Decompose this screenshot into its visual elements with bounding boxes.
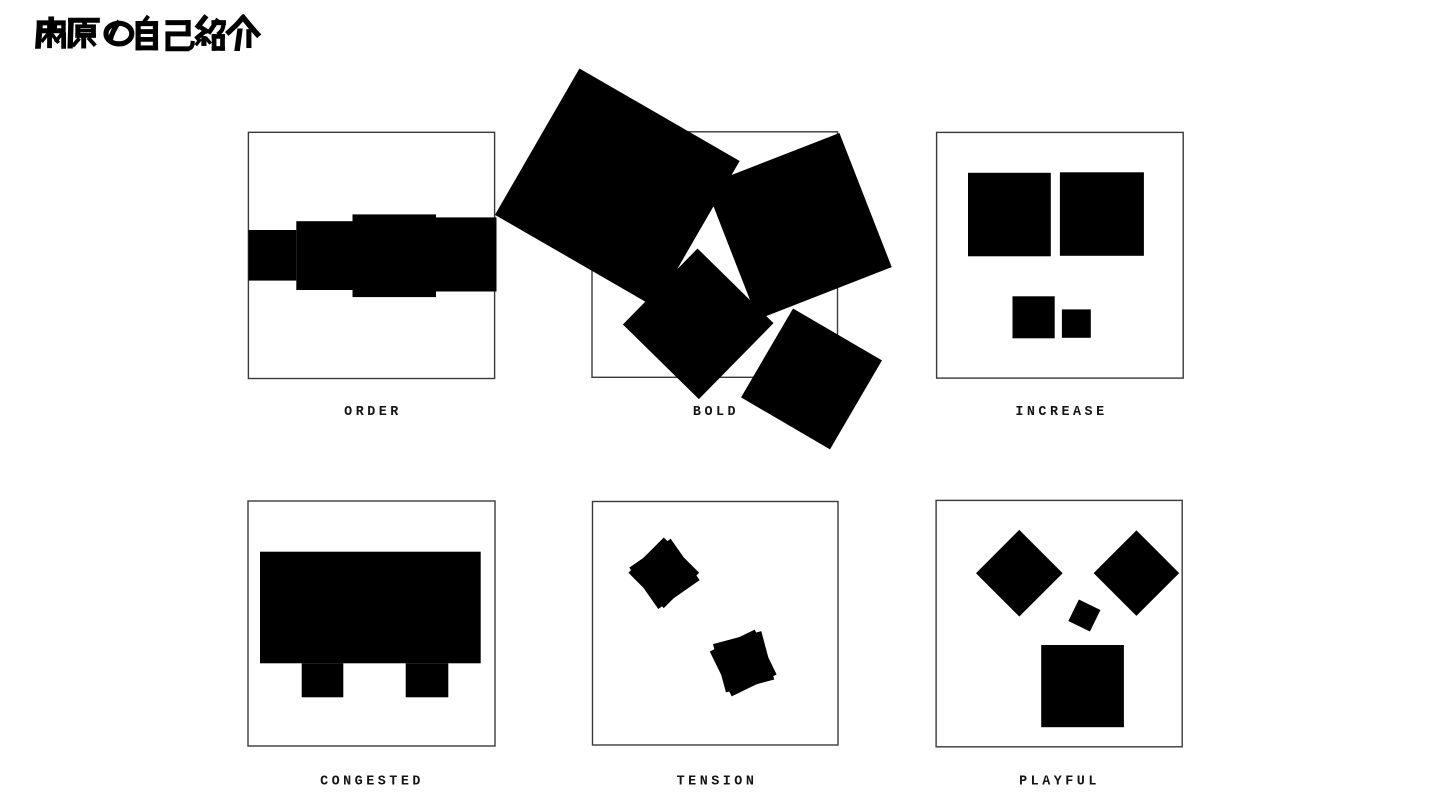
svg-text:BOLD: BOLD	[693, 405, 739, 420]
svg-text:TENSION: TENSION	[677, 774, 758, 789]
svg-text:INCREASE: INCREASE	[1015, 405, 1107, 420]
svg-text:PLAYFUL: PLAYFUL	[1019, 774, 1100, 789]
svg-text:ORDER: ORDER	[344, 405, 402, 420]
svg-text:CONGESTED: CONGESTED	[320, 774, 424, 789]
